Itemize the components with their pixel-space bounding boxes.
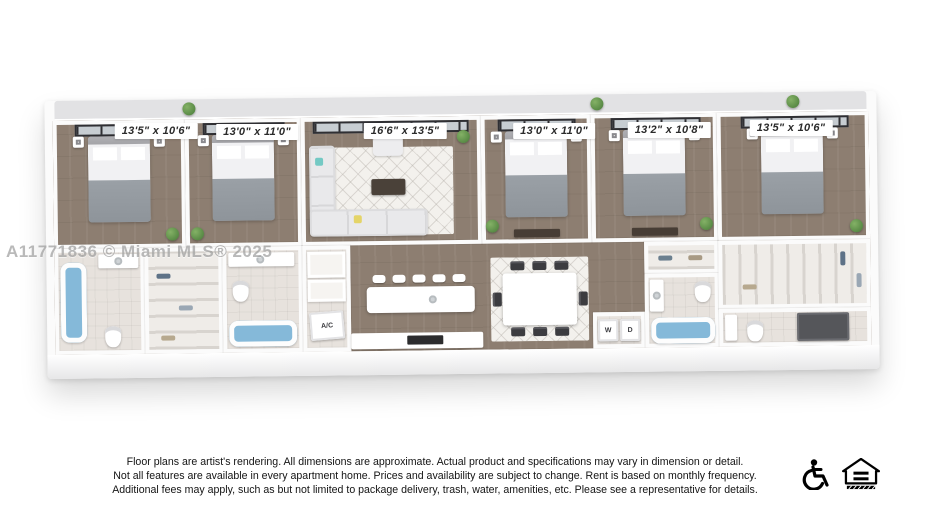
disclaimer-line: Floor plans are artist's rendering. All …	[50, 456, 820, 470]
bed	[761, 128, 824, 215]
bed	[88, 136, 151, 223]
washer: W	[598, 319, 618, 341]
bathroom-vanity	[725, 315, 737, 341]
plant-icon	[191, 227, 204, 240]
dining-table	[502, 273, 577, 326]
plant-icon	[700, 217, 713, 230]
bar-stool	[392, 275, 405, 283]
walk-in-closet-2	[718, 239, 871, 309]
room-dimension-label: 13'5" x 10'6"	[750, 120, 833, 136]
throw-pillow	[354, 215, 362, 223]
dining-chair	[554, 261, 568, 270]
bar-stool	[432, 274, 445, 282]
floor-plan-page: A/C W	[0, 0, 930, 505]
bathtub	[651, 317, 715, 344]
bed	[623, 129, 686, 216]
clothes	[658, 255, 672, 260]
room-dimension-label: 13'0" x 11'0"	[513, 123, 595, 139]
cooktop	[407, 335, 443, 344]
storage-shelf	[307, 251, 345, 277]
nightstand	[198, 135, 209, 146]
nightstand	[609, 130, 620, 141]
clothes	[688, 255, 702, 260]
media-console	[514, 229, 560, 238]
media-console	[632, 227, 678, 236]
clothes	[161, 336, 175, 341]
dining-chair	[555, 327, 569, 336]
dining-chair	[493, 293, 502, 307]
toilet	[695, 281, 711, 302]
clothes	[743, 284, 757, 289]
bar-stool	[372, 275, 385, 283]
walk-in-closet-1	[144, 247, 223, 354]
room-dimension-label: 16'6" x 13'5"	[364, 123, 447, 139]
plant-icon	[166, 227, 179, 240]
accessibility-icon	[800, 458, 832, 490]
clothes	[179, 305, 193, 310]
plant-icon	[182, 102, 195, 115]
shower	[797, 312, 849, 341]
plant-icon	[786, 95, 799, 108]
mls-watermark: A11771836 © Miami MLS® 2025	[6, 242, 272, 262]
bathtub	[60, 263, 87, 343]
footer-icons	[800, 456, 886, 492]
unit-interior: A/C W	[53, 111, 872, 355]
toilet	[233, 281, 249, 302]
bathroom-vanity	[650, 280, 664, 312]
bar-stool	[452, 274, 465, 282]
toilet	[105, 326, 121, 347]
plant-icon	[457, 130, 470, 143]
coffee-table	[371, 179, 405, 195]
kitchen-island	[367, 286, 475, 313]
room-dimension-label: 13'0" x 11'0"	[216, 124, 298, 140]
nightstand	[491, 132, 502, 143]
closet-3	[644, 241, 718, 274]
clothes	[856, 273, 861, 287]
sink	[653, 292, 661, 300]
disclaimer-text: Floor plans are artist's rendering. All …	[50, 456, 820, 498]
plant-icon	[486, 220, 499, 233]
dryer: D	[620, 319, 640, 341]
disclaimer-line: Not all features are available in every …	[50, 470, 820, 484]
equal-housing-icon	[842, 458, 880, 490]
dining-chair	[511, 327, 525, 336]
toilet	[747, 320, 763, 341]
bed	[505, 131, 568, 218]
plant-icon	[850, 219, 863, 232]
dining-chair	[533, 327, 547, 336]
ac-unit: A/C	[309, 310, 345, 341]
bathtub	[229, 320, 297, 347]
plant-icon	[590, 97, 603, 110]
clothes	[840, 251, 845, 265]
storage-shelf	[308, 279, 346, 301]
ac-unit-label: A/C	[321, 322, 334, 330]
clothes	[156, 274, 170, 279]
sectional-sofa	[310, 208, 428, 236]
room-dimension-label: 13'5" x 10'6"	[115, 123, 198, 139]
island-faucet	[429, 295, 437, 303]
disclaimer-line: Additional fees may apply, such as but n…	[50, 484, 820, 498]
nightstand	[73, 137, 84, 148]
bed	[212, 134, 275, 221]
dining-chair	[579, 291, 588, 305]
room-dimension-label: 13'2" x 10'8"	[628, 122, 711, 138]
bar-stool	[412, 274, 425, 282]
washer-label: W	[605, 327, 612, 334]
throw-pillow	[315, 158, 323, 166]
dining-chair	[532, 261, 546, 270]
dryer-label: D	[628, 326, 633, 333]
dining-chair	[510, 261, 524, 270]
